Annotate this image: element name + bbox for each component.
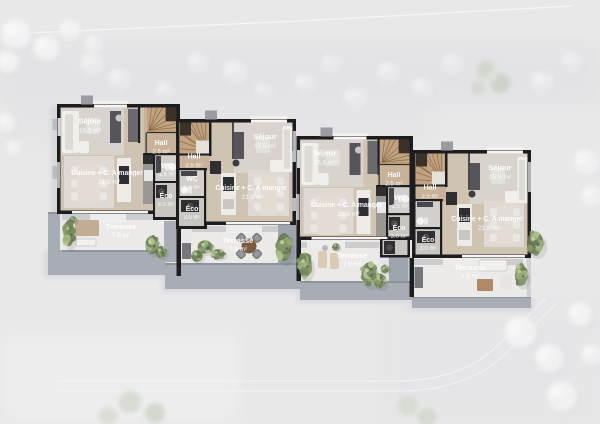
svg-text:2.5 m²: 2.5 m²	[421, 194, 438, 200]
svg-text:Terrasse: Terrasse	[106, 222, 137, 231]
svg-text:Éco: Éco	[186, 204, 199, 213]
svg-text:7.9 m²: 7.9 m²	[229, 246, 248, 253]
svg-text:Séjour: Séjour	[253, 132, 276, 141]
svg-text:Éco: Éco	[422, 235, 435, 244]
svg-text:1.5 m²: 1.5 m²	[391, 204, 408, 210]
svg-text:Terrasse: Terrasse	[455, 263, 486, 272]
svg-text:15.5 m²: 15.5 m²	[79, 128, 102, 135]
svg-text:15.5 m²: 15.5 m²	[254, 143, 277, 150]
svg-text:Séjour: Séjour	[488, 163, 511, 172]
svg-text:21.8 m²: 21.8 m²	[98, 179, 121, 186]
svg-text:2.5 m²: 2.5 m²	[152, 150, 169, 156]
svg-text:Cuisine + C. À manger: Cuisine + C. À manger	[71, 168, 143, 177]
svg-text:15.5 m²: 15.5 m²	[489, 174, 512, 181]
svg-text:Séjour: Séjour	[78, 117, 101, 126]
svg-text:WC: WC	[394, 195, 406, 202]
svg-text:Cuisine + C. À manger: Cuisine + C. À manger	[451, 214, 523, 223]
svg-text:Séjour: Séjour	[313, 149, 336, 158]
svg-text:Cuisine + C. À manger: Cuisine + C. À manger	[215, 183, 287, 192]
svg-text:15.5 m²: 15.5 m²	[313, 160, 336, 167]
svg-text:WC: WC	[186, 176, 198, 183]
svg-text:21.8 m²: 21.8 m²	[478, 225, 501, 232]
svg-text:Éco: Éco	[160, 191, 173, 200]
svg-text:Éco: Éco	[393, 223, 406, 232]
svg-text:Hall: Hall	[424, 185, 437, 192]
svg-text:7.9 m²: 7.9 m²	[343, 261, 362, 268]
svg-text:21.8 m²: 21.8 m²	[337, 211, 360, 218]
svg-text:9.6 m²: 9.6 m²	[461, 273, 480, 280]
svg-text:7.9 m²: 7.9 m²	[112, 232, 131, 239]
svg-text:Hall: Hall	[188, 154, 201, 161]
svg-text:Hall: Hall	[388, 172, 401, 179]
svg-text:Cuisine + C. À manger: Cuisine + C. À manger	[311, 200, 383, 209]
svg-text:21.8 m²: 21.8 m²	[242, 194, 265, 201]
svg-text:3.0 m²: 3.0 m²	[157, 202, 174, 208]
svg-text:2.5 m²: 2.5 m²	[185, 163, 202, 169]
svg-text:3.0 m²: 3.0 m²	[419, 246, 436, 252]
svg-text:Hall: Hall	[155, 140, 168, 147]
svg-text:Terrasse: Terrasse	[223, 236, 254, 245]
svg-text:1.5 m²: 1.5 m²	[183, 185, 200, 191]
svg-text:3.0 m²: 3.0 m²	[183, 215, 200, 221]
svg-text:2.5 m²: 2.5 m²	[385, 182, 402, 188]
svg-text:Terrasse: Terrasse	[337, 251, 368, 260]
svg-text:WC: WC	[161, 163, 173, 170]
svg-text:1.5 m²: 1.5 m²	[158, 172, 175, 178]
